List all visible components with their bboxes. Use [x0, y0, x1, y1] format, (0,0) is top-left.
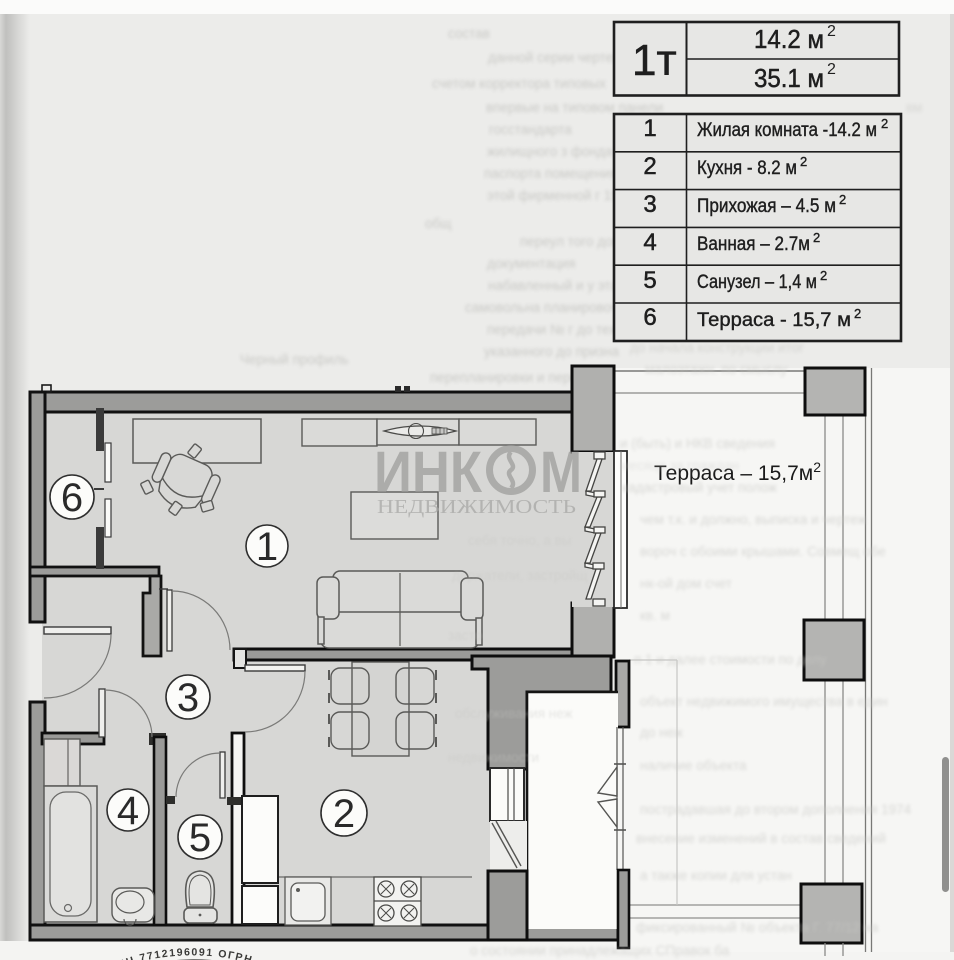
- svg-text:2: 2: [813, 230, 820, 245]
- svg-text:фиксированный № объекта Г. 7: фиксированный № объекта Г. 77/12 на: [636, 920, 879, 935]
- svg-text:1: 1: [256, 525, 278, 569]
- svg-text:14.2 м: 14.2 м: [754, 24, 824, 54]
- svg-text:госстандарта: госстандарта: [489, 122, 572, 137]
- svg-text:1: 1: [643, 115, 656, 142]
- svg-text:до начала конструкции итог: до начала конструкции итог: [630, 340, 804, 355]
- svg-text:недвижимости: недвижимости: [448, 750, 539, 765]
- svg-text:2: 2: [827, 61, 836, 78]
- svg-text:2: 2: [333, 792, 355, 836]
- svg-text:5: 5: [189, 816, 211, 860]
- svg-text:вороч с обоими крышами. Сов: вороч с обоими крышами. Совмещ обе: [640, 544, 886, 559]
- svg-text:Прихожая – 4.5 м: Прихожая – 4.5 м: [697, 196, 836, 217]
- svg-text:2: 2: [827, 23, 836, 40]
- svg-text:Кухня - 8.2 м: Кухня - 8.2 м: [697, 158, 797, 179]
- svg-text:3: 3: [643, 191, 656, 218]
- svg-text:2: 2: [881, 116, 888, 131]
- svg-text:Ванная – 2.7м: Ванная – 2.7м: [697, 234, 810, 255]
- svg-text:6: 6: [61, 476, 83, 520]
- svg-text:чем т.к. и должно, выписка и: чем т.к. и должно, выписка и чертеж: [640, 512, 867, 527]
- svg-text:2: 2: [643, 153, 656, 180]
- svg-text:счетом корректора типовых: счетом корректора типовых: [432, 76, 606, 91]
- svg-text:малоэтажн. по смыслу: малоэтажн. по смыслу: [645, 362, 787, 377]
- svg-text:Черный профиль: Черный профиль: [240, 352, 348, 367]
- svg-text:5: 5: [643, 267, 656, 294]
- svg-text:держатели, застройщ: держатели, застройщ: [452, 568, 587, 583]
- svg-text:этой фирменной г 19м: этой фирменной г 19м: [487, 188, 628, 203]
- svg-text:указанного до призна: указанного до призна: [484, 344, 619, 359]
- svg-text:наличие объекта: наличие объекта: [640, 758, 747, 773]
- svg-text:месяца за граждан: месяца за граждан: [620, 458, 739, 473]
- svg-text:объект недвижимого имущества: объект недвижимого имущества в един: [640, 694, 888, 709]
- svg-text:о состоянии принадлежащих СПр: о состоянии принадлежащих СПравок ба: [470, 943, 730, 958]
- svg-text:до неж: до неж: [640, 725, 683, 740]
- svg-text:вм: вм: [906, 100, 922, 115]
- svg-text:засто: засто: [448, 628, 482, 643]
- svg-text:общ: общ: [425, 216, 451, 231]
- svg-text:4: 4: [117, 789, 139, 833]
- svg-text:2: 2: [820, 268, 827, 283]
- svg-text:кв. м: кв. м: [640, 608, 670, 623]
- svg-text:п 1 и далее стоимости по делу: п 1 и далее стоимости по делу: [634, 652, 827, 667]
- svg-text:Жилая комната -14.2 м: Жилая комната -14.2 м: [697, 120, 877, 141]
- svg-text:кадастровый учет полож: кадастровый учет полож: [622, 480, 777, 495]
- svg-text:Терраса - 15,7 м: Терраса - 15,7 м: [697, 310, 851, 331]
- svg-text:себя точно, а вы: себя точно, а вы: [468, 533, 571, 548]
- svg-text:и (быть) и НКВ сведения: и (быть) и НКВ сведения: [620, 436, 775, 451]
- svg-text:внесение изменений в состав с: внесение изменений в состав сведений: [636, 831, 886, 846]
- svg-text:2: 2: [839, 192, 846, 207]
- svg-text:НЕДВИЖИМОСТЬ: НЕДВИЖИМОСТЬ: [377, 496, 576, 518]
- svg-text:2: 2: [854, 306, 861, 321]
- svg-text:обслуживания неж: обслуживания неж: [455, 706, 573, 721]
- svg-text:пострадавшая до втором дополн: пострадавшая до втором дополнения 1974: [640, 802, 912, 817]
- svg-text:4: 4: [643, 229, 656, 256]
- svg-text:2: 2: [800, 154, 807, 169]
- svg-text:данной серии чертеж: данной серии чертеж: [488, 50, 622, 65]
- svg-text:6: 6: [643, 304, 656, 331]
- svg-text:35.1 м: 35.1 м: [754, 63, 824, 93]
- svg-text:нк-ой дом счет: нк-ой дом счет: [640, 576, 732, 591]
- svg-text:а также копии для устан: а также копии для устан: [640, 868, 792, 883]
- svg-text:документация: документация: [487, 256, 575, 271]
- svg-text:Санузел – 1,4 м: Санузел – 1,4 м: [697, 272, 817, 293]
- svg-text:1т: 1т: [632, 36, 677, 85]
- svg-text:3: 3: [177, 676, 199, 720]
- svg-text:состав: состав: [448, 26, 490, 41]
